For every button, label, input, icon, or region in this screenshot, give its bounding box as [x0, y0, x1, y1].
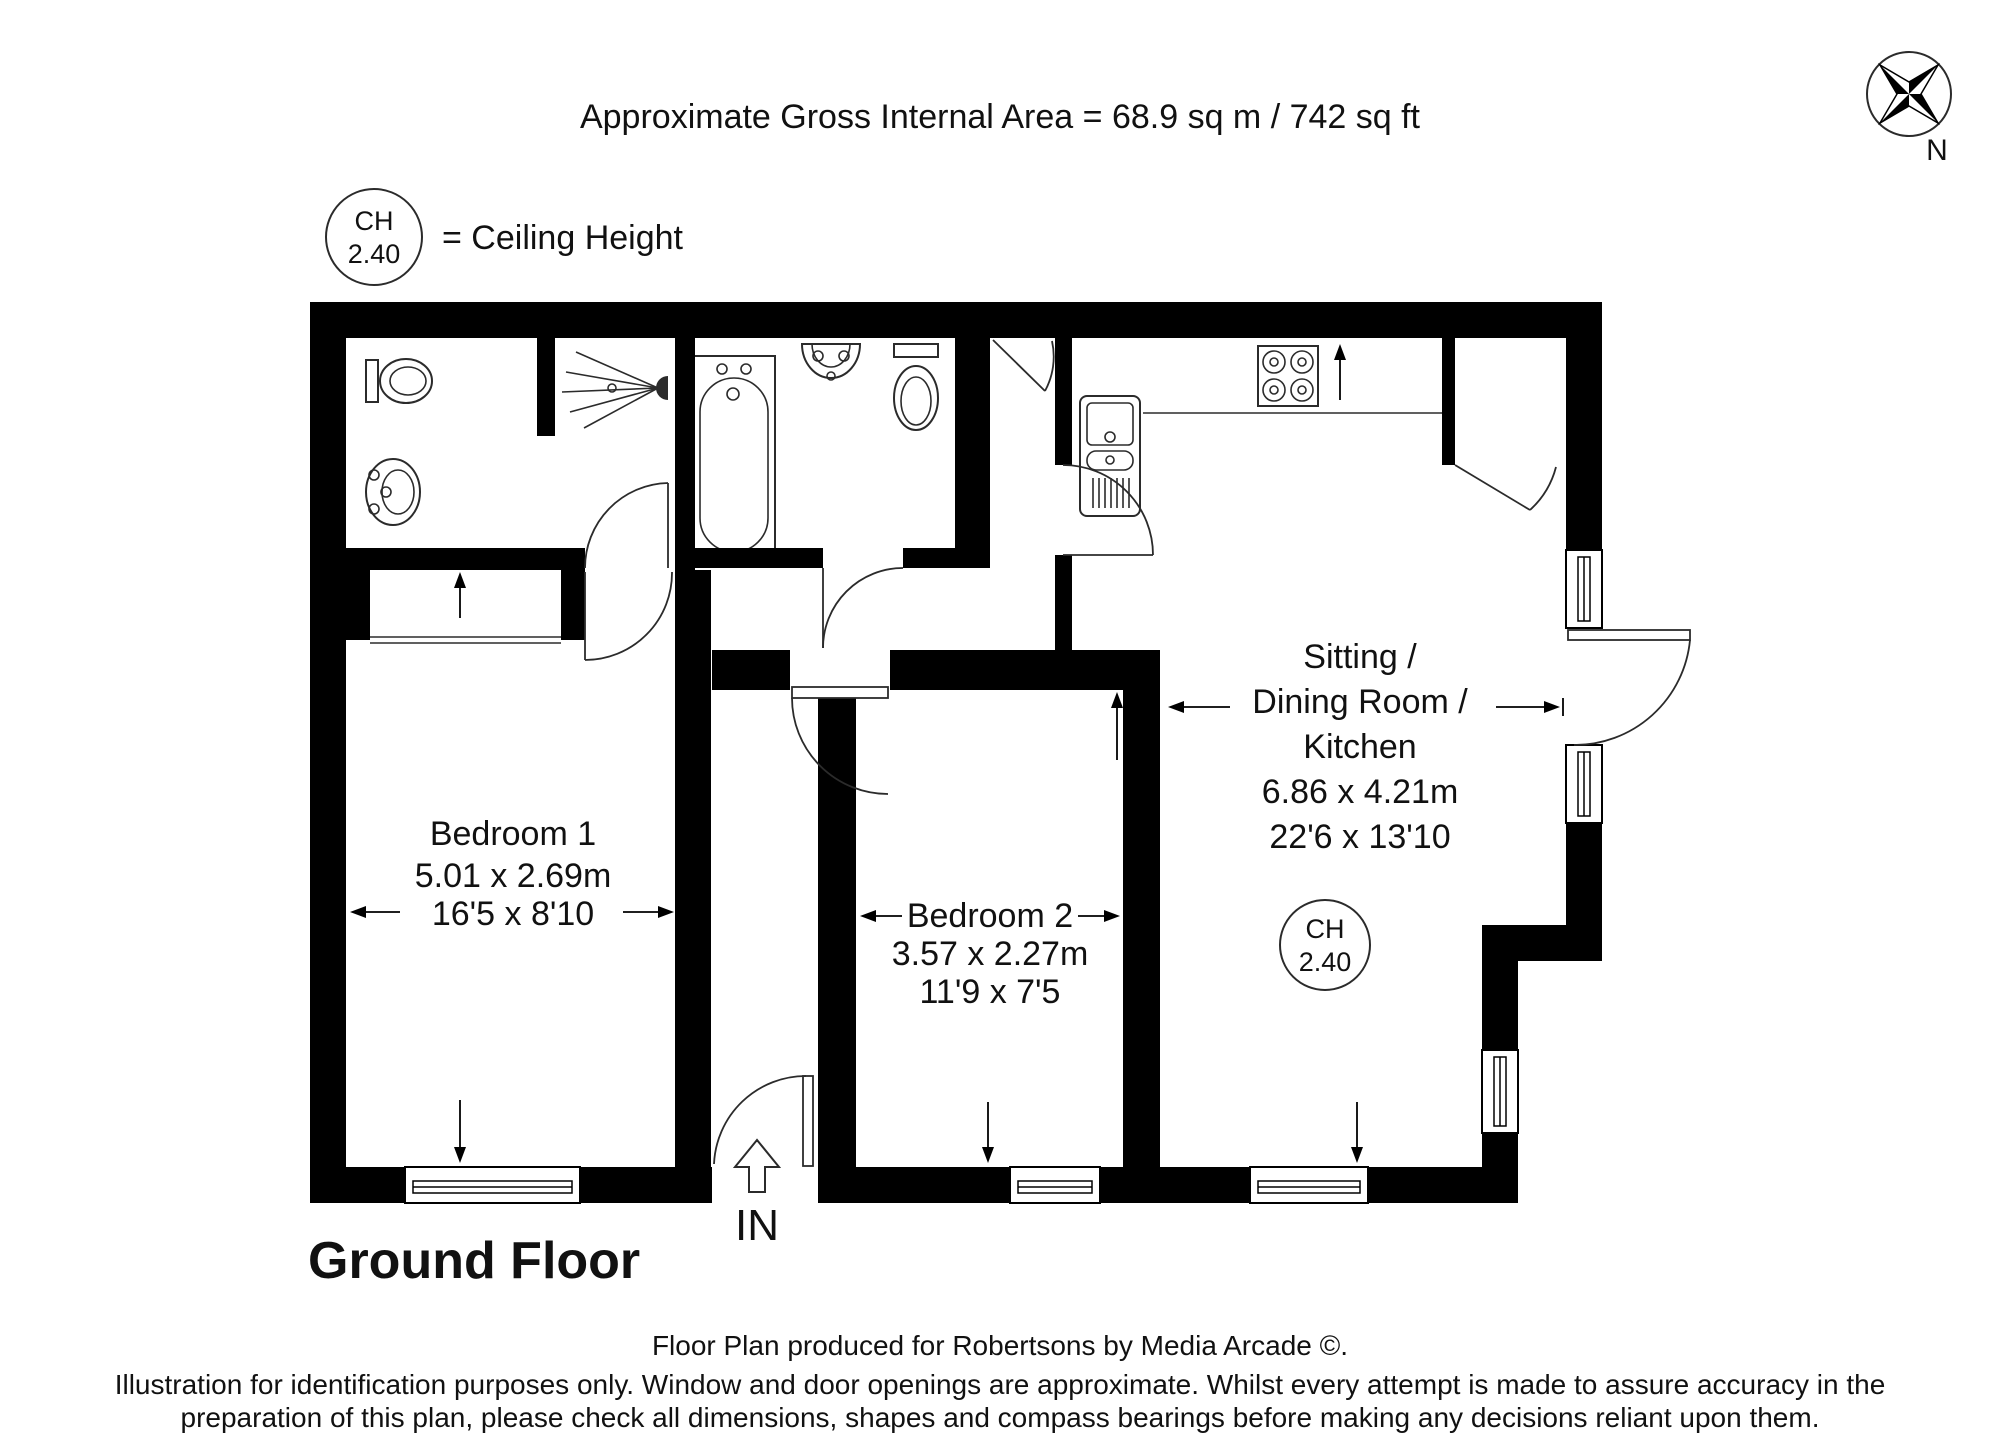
- sitting-name-1: Sitting /: [1303, 638, 1417, 676]
- window-icon: [1250, 1167, 1368, 1203]
- bedroom2-name: Bedroom 2: [907, 897, 1073, 935]
- bedroom1-metric: 5.01 x 2.69m: [415, 857, 612, 895]
- sink-icon: [802, 344, 860, 380]
- ensuite-door-arc: [585, 483, 668, 568]
- page-title: Approximate Gross Internal Area = 68.9 s…: [580, 98, 1421, 136]
- bathtub-icon: [693, 356, 775, 560]
- store-door-arc: [1455, 465, 1556, 510]
- footer-disclaimer: Floor Plan produced for Robertsons by Me…: [115, 1330, 1886, 1433]
- toilet-icon: [366, 359, 432, 403]
- cupboard-door-arc: [993, 340, 1054, 391]
- footer-line1: Floor Plan produced for Robertsons by Me…: [652, 1330, 1348, 1361]
- ch-badge-line2: 2.40: [348, 239, 401, 269]
- sitting-imperial: 22'6 x 13'10: [1269, 818, 1450, 856]
- toilet-icon: [894, 344, 938, 430]
- ch-badge-circle: [326, 189, 422, 285]
- hob-icon: [1258, 346, 1318, 406]
- sitting-name-2: Dining Room /: [1252, 683, 1468, 721]
- compass-north-label: N: [1926, 134, 1948, 167]
- bedroom2-metric: 3.57 x 2.27m: [892, 935, 1089, 973]
- window-icon: [1566, 745, 1602, 823]
- french-door-arc: [1568, 630, 1690, 745]
- bedroom2-imperial: 11'9 x 7'5: [920, 973, 1061, 1011]
- sitting-ch-badge: CH 2.40: [1280, 900, 1370, 990]
- bedroom1-door-arc: [585, 572, 672, 660]
- floor-title: Ground Floor: [308, 1232, 640, 1290]
- sitting-ch-line2: 2.40: [1299, 947, 1352, 977]
- sitting-metric: 6.86 x 4.21m: [1262, 773, 1459, 811]
- sitting-ch-line1: CH: [1306, 914, 1345, 944]
- basin-icon: [366, 459, 420, 525]
- entrance-arrow-icon: [735, 1140, 779, 1192]
- bedroom1-imperial: 16'5 x 8'10: [432, 895, 594, 933]
- window-icon: [1566, 550, 1602, 628]
- footer-line2: Illustration for identification purposes…: [115, 1369, 1886, 1400]
- window-icon: [405, 1167, 580, 1203]
- compass-icon: N: [1867, 52, 1951, 167]
- ch-legend-label: = Ceiling Height: [442, 219, 684, 257]
- shower-icon: [562, 352, 668, 428]
- kitchen-sink-icon: [1080, 396, 1140, 516]
- floor-plan-canvas: Approximate Gross Internal Area = 68.9 s…: [0, 0, 2000, 1443]
- footer-line3: preparation of this plan, please check a…: [181, 1402, 1820, 1433]
- sitting-name-3: Kitchen: [1303, 728, 1416, 766]
- bedroom2-label: Bedroom 2 3.57 x 2.27m 11'9 x 7'5: [892, 897, 1089, 1011]
- floor-plan-page: Approximate Gross Internal Area = 68.9 s…: [0, 0, 2000, 1443]
- window-icon: [1482, 1050, 1518, 1133]
- ceiling-height-legend: CH 2.40 = Ceiling Height: [326, 189, 684, 285]
- sitting-room-label: Sitting / Dining Room / Kitchen 6.86 x 4…: [1252, 638, 1468, 856]
- window-icon: [1010, 1167, 1100, 1203]
- bathroom-door-arc: [823, 568, 903, 648]
- bedroom1-name: Bedroom 1: [430, 815, 596, 853]
- wardrobe-front: [370, 637, 561, 643]
- bedroom1-label: Bedroom 1 5.01 x 2.69m 16'5 x 8'10: [415, 815, 612, 933]
- ch-badge-line1: CH: [355, 206, 394, 236]
- entrance-label: IN: [735, 1201, 779, 1250]
